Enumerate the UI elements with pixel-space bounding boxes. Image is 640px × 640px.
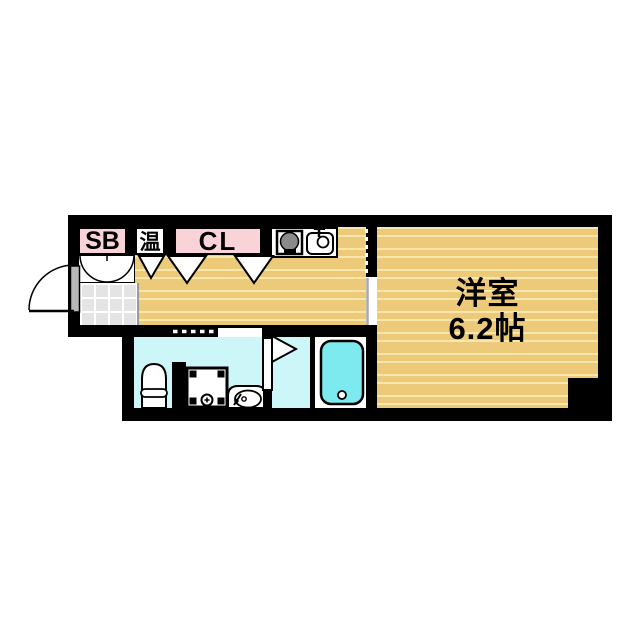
door-swing-icon (139, 256, 273, 283)
plan-symbols (0, 0, 640, 640)
toilet-icon (141, 364, 167, 408)
sliding-door-icon (367, 229, 368, 325)
washing-machine-pan-icon (187, 368, 227, 407)
floor-plan: SB 温 CL 洋室 6.2帖 (0, 0, 640, 640)
kitchen-sink-icon (307, 228, 333, 254)
shoe-box-doors-icon (80, 255, 134, 282)
entry-door-icon (29, 265, 80, 312)
wash-basin-icon (228, 386, 266, 408)
folding-door-icon (263, 336, 296, 408)
stove-icon (277, 231, 302, 254)
bathtub-icon (321, 341, 363, 404)
